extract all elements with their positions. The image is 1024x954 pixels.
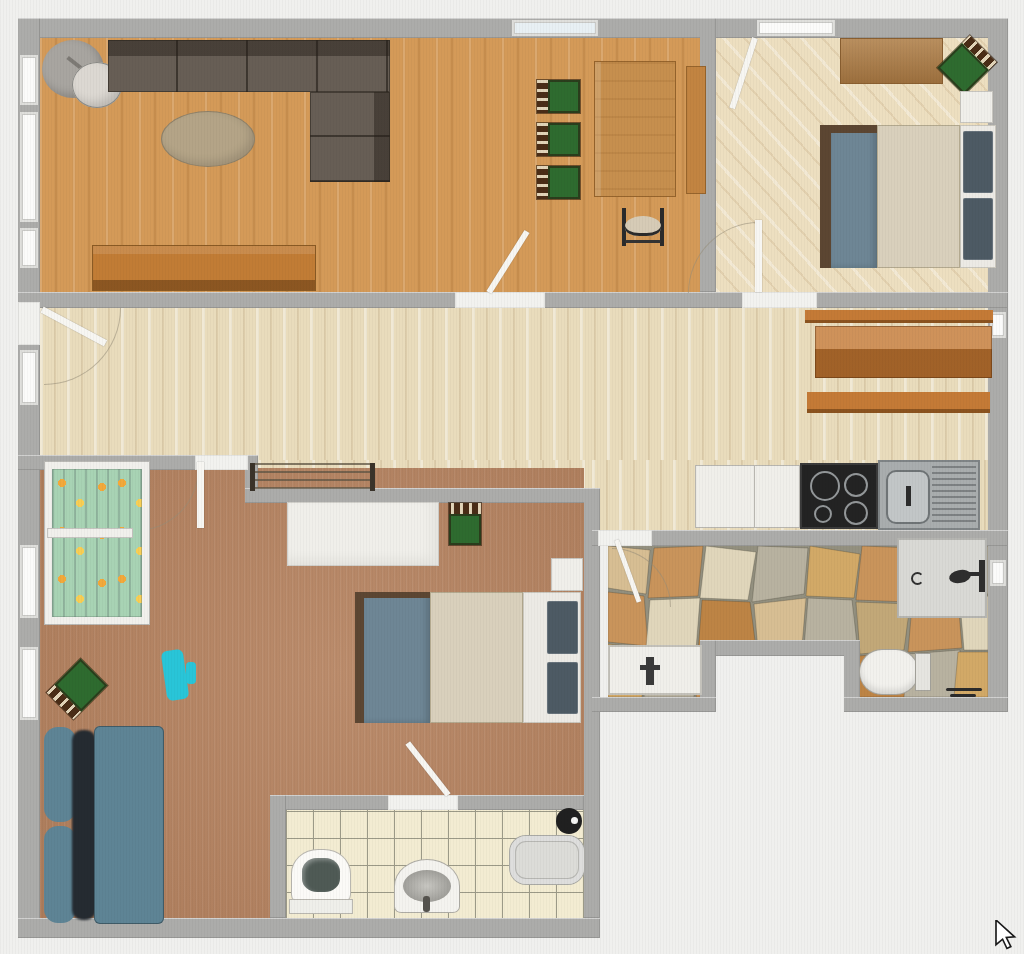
toilet-tank	[916, 654, 930, 690]
bed-pillow	[547, 601, 578, 654]
bed-blanket	[831, 125, 877, 268]
bed-footboard	[355, 592, 364, 723]
kids-desk[interactable]	[288, 503, 438, 565]
bed-footboard	[820, 125, 831, 268]
sideboard[interactable]	[93, 246, 315, 290]
fixture-bar	[950, 694, 976, 697]
dining-chair-2[interactable]	[537, 123, 580, 156]
faucet-icon	[906, 486, 911, 506]
chair-rail	[625, 240, 661, 243]
chair-frame	[537, 123, 548, 156]
kids-nightstand[interactable]	[552, 559, 582, 590]
arrow-pointer-icon	[992, 920, 1018, 950]
toilet-bowl	[860, 650, 918, 694]
wardrobe[interactable]	[840, 38, 943, 84]
radiator[interactable]	[250, 463, 375, 491]
wall-plank-2[interactable]	[815, 326, 992, 378]
radiator-endcap	[370, 463, 375, 491]
bed-mattress	[430, 592, 523, 723]
window-living-left-1[interactable]	[20, 55, 38, 105]
toy[interactable]	[160, 648, 200, 704]
kitchen-counter[interactable]	[695, 465, 800, 528]
dark-fixture[interactable]	[556, 808, 582, 834]
faucet-icon	[646, 657, 654, 685]
mouse-cursor	[992, 920, 1018, 950]
fixture-bar	[946, 688, 982, 691]
window-top-dining[interactable]	[512, 20, 598, 36]
door-threshold-entry[interactable]	[18, 302, 40, 345]
door-threshold-bedroom[interactable]	[742, 292, 817, 308]
shower-room-toilet[interactable]	[860, 650, 930, 694]
dark-chair[interactable]	[620, 206, 666, 250]
showerhead-icon	[948, 568, 972, 585]
bed-pillow	[963, 131, 993, 193]
chair-frame	[537, 166, 548, 199]
wall-plank-3[interactable]	[807, 392, 990, 413]
bedroom-door-leaf[interactable]	[755, 220, 762, 292]
wall-shower-mid	[700, 640, 860, 656]
shower-valve-icon	[979, 560, 985, 592]
kitchen-sink[interactable]	[878, 460, 980, 530]
side-bench[interactable]	[687, 67, 705, 193]
bathtub[interactable]	[510, 836, 584, 884]
toy-part	[186, 662, 196, 684]
burner-ring	[844, 501, 868, 525]
fixture-dot	[571, 817, 578, 824]
dining-chair-1[interactable]	[537, 80, 580, 113]
burner-ring	[844, 473, 868, 497]
bed-pillow	[547, 662, 578, 714]
bed-pillow	[963, 198, 993, 260]
window-kids-left-2[interactable]	[20, 647, 38, 720]
bed-blanket	[364, 592, 430, 723]
desk-chair[interactable]	[449, 503, 481, 545]
wall-vanity-bottom	[592, 697, 716, 712]
chair-seat	[548, 166, 580, 199]
faucet-icon	[423, 896, 430, 912]
chair-frame	[449, 503, 481, 514]
faucet-handle	[640, 665, 660, 670]
window-right-shower[interactable]	[990, 560, 1006, 586]
wall-plank-1[interactable]	[805, 310, 993, 323]
sink-drainboard	[932, 466, 976, 524]
burner-ring	[810, 471, 840, 501]
crib-divider	[48, 529, 132, 537]
coffee-table[interactable]	[162, 112, 254, 166]
chair-seat	[548, 80, 580, 113]
window-living-left-2[interactable]	[20, 112, 38, 222]
door-threshold-bathroom[interactable]	[388, 795, 458, 810]
floor-fixture[interactable]	[946, 680, 986, 700]
exterior-notch	[716, 656, 844, 697]
drain-icon	[911, 572, 924, 585]
toilet-seat	[302, 858, 340, 892]
burner-ring	[814, 505, 832, 523]
door-threshold-shower-room[interactable]	[598, 530, 652, 546]
window-kids-left-1[interactable]	[20, 545, 38, 618]
toilet-tank	[290, 900, 352, 913]
wall-bathroom-left	[270, 795, 286, 918]
chair-seat	[625, 216, 661, 236]
window-top-bedroom[interactable]	[757, 20, 835, 36]
vanity-basin[interactable]	[608, 645, 702, 695]
crib[interactable]	[45, 462, 149, 624]
door-threshold-living-hall[interactable]	[455, 292, 545, 308]
window-living-left-3[interactable]	[20, 228, 38, 268]
floor-plan-canvas	[0, 0, 1024, 954]
radiator-endcap	[250, 463, 255, 491]
bed-mattress	[877, 125, 960, 268]
dining-chair-3[interactable]	[537, 166, 580, 199]
bedroom-nightstand[interactable]	[961, 92, 992, 122]
sofa-column	[310, 92, 390, 182]
cooktop[interactable]	[800, 463, 878, 529]
sofa-row	[108, 40, 390, 92]
chair-frame	[537, 80, 548, 113]
kids-door-leaf[interactable]	[197, 462, 204, 528]
toilet[interactable]	[290, 850, 352, 914]
dining-table[interactable]	[595, 62, 675, 196]
window-hall-left[interactable]	[20, 350, 38, 405]
washbasin[interactable]	[395, 860, 459, 914]
loveseat-shadow	[72, 730, 96, 920]
loveseat-seat	[94, 726, 164, 924]
chair-seat	[548, 123, 580, 156]
shower-stall[interactable]	[897, 538, 987, 618]
chair-seat	[449, 514, 481, 545]
